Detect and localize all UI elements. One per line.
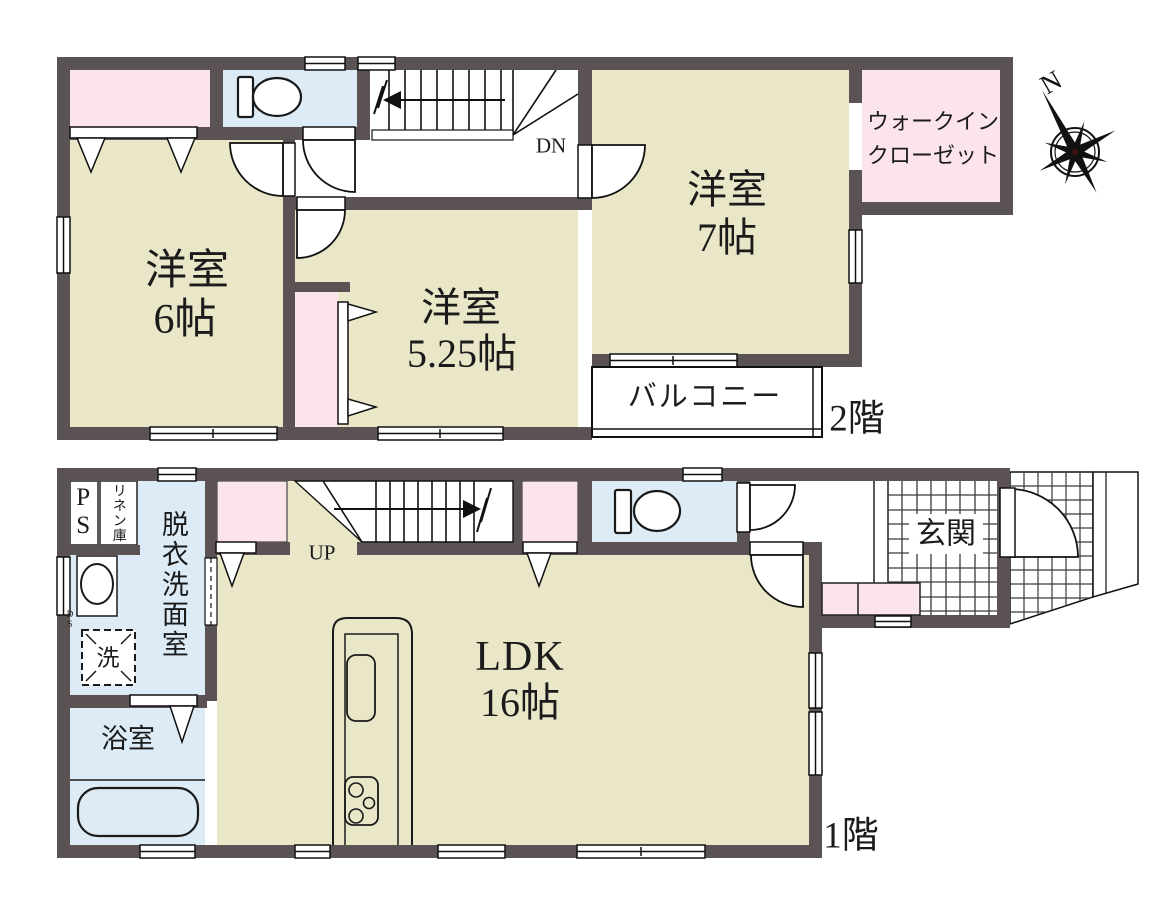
washbasin-icon: [77, 556, 117, 616]
room-closet-6j: [70, 70, 210, 127]
shoe-cabinet: [822, 583, 920, 615]
label-wic-line1: ウォークイン: [867, 110, 999, 134]
label-floor2: 2階: [829, 400, 885, 441]
label-pipe-space: PS: [69, 484, 97, 540]
floor-plan: N 洋室 6帖 洋室 5.25帖 洋室 7帖 ウォークイン クローゼット バルコ…: [0, 0, 1176, 914]
compass-icon: N: [1007, 64, 1137, 211]
label-western6-size: 6帖: [153, 297, 216, 343]
label-linen: リネン庫: [110, 483, 125, 543]
label-western6-name: 洋室: [145, 248, 229, 294]
wic-opening: [849, 103, 862, 170]
toilet-icon: [238, 77, 301, 117]
toilet-1f-doorway: [737, 483, 750, 532]
room-walk-in-closet: [862, 70, 1000, 202]
room-closet-ldk-left: [217, 481, 287, 542]
western-7j-doorway: [578, 145, 592, 198]
label-western7-size: 7帖: [697, 216, 757, 260]
toilet-icon: [615, 490, 680, 533]
label-bath: 浴室: [101, 725, 155, 755]
entrance-door-leaf: [1000, 488, 1015, 557]
closet-ldk-left-door-track: [216, 542, 256, 553]
label-wic-line2: クローゼット: [867, 144, 999, 168]
bath-door-track: [130, 695, 197, 706]
floor-plan-drawing: N: [0, 0, 1176, 914]
closet-525j-door-track: [338, 302, 348, 424]
toilet-2f-doorway: [303, 127, 355, 140]
porch-outer-step: [1093, 472, 1138, 597]
label-stairs-dn: DN: [536, 134, 566, 157]
toilet-2f-door-arc: [303, 140, 355, 192]
label-stairs-up: UP: [309, 541, 336, 564]
label-balcony: バルコニー: [628, 382, 782, 414]
label-laundry: 洗: [97, 645, 120, 670]
label-ldk-name: LDK: [475, 634, 564, 680]
label-floor1: 1階: [823, 817, 879, 858]
label-duct-space: DS: [64, 609, 74, 629]
ldk-doorway: [750, 542, 803, 555]
label-western7-name: 洋室: [687, 168, 767, 212]
room-closet-ldk-right: [522, 481, 578, 542]
room-western-7j: [592, 70, 849, 354]
room-closet-525j: [295, 292, 338, 427]
western-6j-doorway: [283, 143, 295, 196]
stairs-2f: [372, 70, 578, 140]
label-washroom: 脱衣洗面室: [157, 510, 187, 660]
closet-ldk-right-door-track: [523, 542, 577, 553]
compass-north-label: N: [1035, 64, 1067, 100]
label-western525-name: 洋室: [421, 286, 501, 330]
closet-6j-door-track: [70, 127, 197, 138]
label-entrance: 玄関: [916, 518, 976, 551]
label-western525-size: 5.25帖: [407, 332, 517, 376]
label-ldk-size: 16帖: [480, 681, 560, 725]
western-525j-doorway: [297, 197, 345, 210]
